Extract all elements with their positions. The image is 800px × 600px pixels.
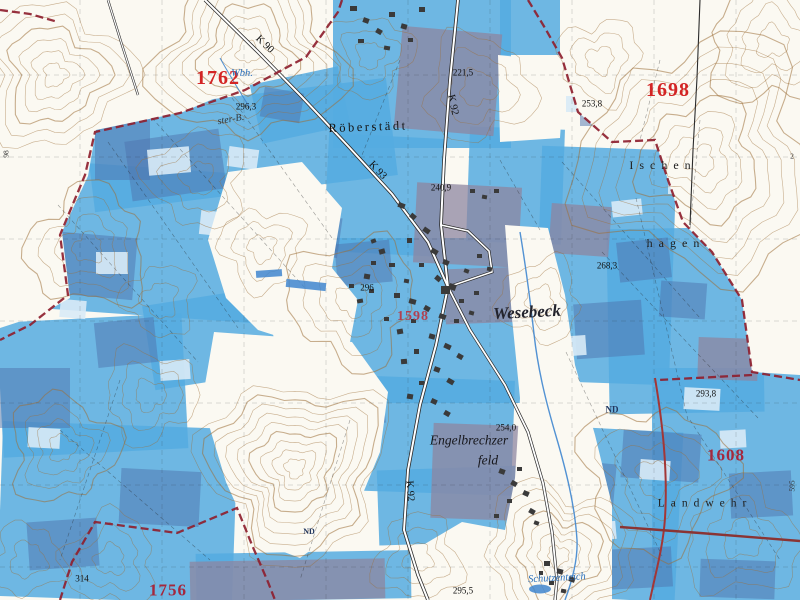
map-canvas [0, 0, 800, 600]
topographic-map: 1762 1698 1598 1756 1608 Röberstädt Wese… [0, 0, 800, 600]
